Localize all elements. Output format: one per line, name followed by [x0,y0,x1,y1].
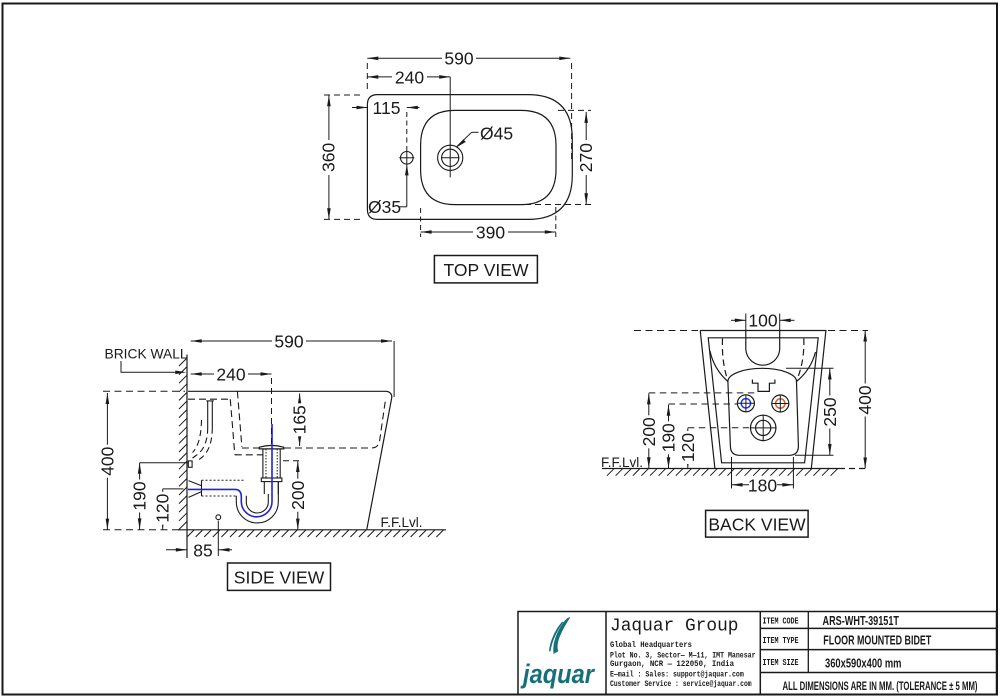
svg-text:F.F.Lvl.: F.F.Lvl. [381,515,423,530]
svg-text:Customer Service : service@jaq: Customer Service : service@jaquar.com [610,679,752,689]
svg-text:85: 85 [193,540,212,560]
svg-text:190: 190 [130,481,150,510]
svg-text:E—mail : Sales: support@jaquar: E—mail : Sales: support@jaquar.com [610,670,744,680]
svg-text:400: 400 [855,385,875,414]
svg-text:BACK VIEW: BACK VIEW [708,515,806,535]
svg-text:jaquar: jaquar [520,659,595,689]
svg-text:165: 165 [290,405,310,434]
svg-text:400: 400 [97,446,117,475]
svg-text:120: 120 [678,433,698,462]
svg-text:ITEM CODE: ITEM CODE [763,616,799,627]
svg-text:250: 250 [820,397,840,426]
svg-text:Global Headquarters: Global Headquarters [610,640,692,650]
svg-text:Jaquar Group: Jaquar Group [610,617,739,637]
svg-text:200: 200 [288,480,308,509]
svg-text:390: 390 [476,223,505,243]
svg-text:115: 115 [373,98,401,118]
svg-text:360x590x400 mm: 360x590x400 mm [825,656,902,670]
svg-text:190: 190 [659,423,679,452]
svg-text:ITEM SIZE: ITEM SIZE [763,657,799,668]
svg-text:SIDE VIEW: SIDE VIEW [234,568,325,588]
svg-text:270: 270 [576,143,596,172]
svg-text:240: 240 [395,68,424,88]
svg-text:Gurgaon, NCR — 122050, India: Gurgaon, NCR — 122050, India [610,659,734,669]
svg-text:F.F.Lvl.: F.F.Lvl. [601,455,643,470]
svg-text:100: 100 [748,310,777,330]
svg-text:200: 200 [639,417,659,446]
svg-text:180: 180 [748,475,777,495]
svg-text:ALL DIMENSIONS ARE IN MM. (TOL: ALL DIMENSIONS ARE IN MM. (TOLERANCE ± 5… [783,681,978,693]
svg-text:BRICK WALL: BRICK WALL [105,346,188,361]
svg-text:240: 240 [216,365,245,385]
svg-text:590: 590 [274,332,303,352]
svg-text:590: 590 [444,49,473,69]
svg-text:ITEM TYPE: ITEM TYPE [763,635,799,646]
svg-text:ARS-WHT-39151T: ARS-WHT-39151T [823,614,900,628]
svg-text:Ø45: Ø45 [480,123,513,143]
svg-text:Ø35: Ø35 [368,197,401,217]
svg-text:TOP VIEW: TOP VIEW [444,260,529,280]
svg-text:120: 120 [153,493,173,522]
svg-text:360: 360 [318,143,338,172]
svg-text:FLOOR MOUNTED BIDET: FLOOR MOUNTED BIDET [823,633,931,647]
